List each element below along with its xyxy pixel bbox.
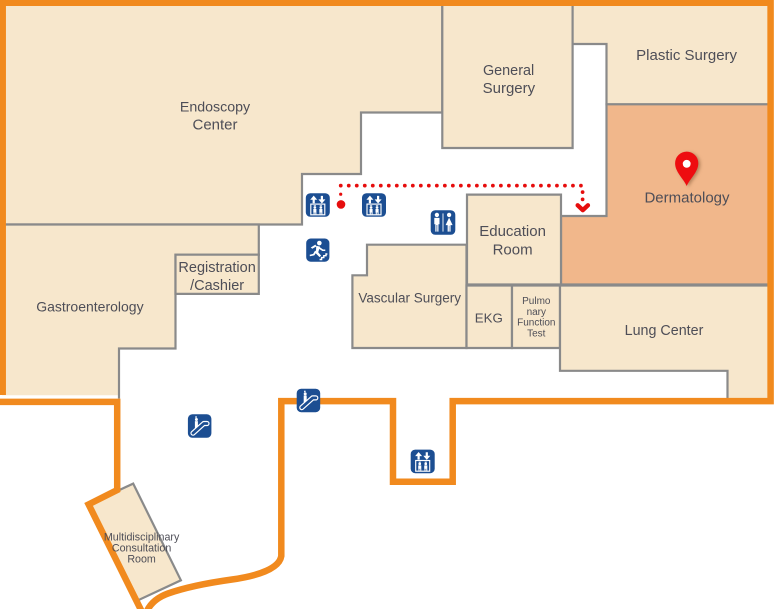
svg-text:Endoscopy: Endoscopy xyxy=(180,100,251,116)
svg-text:Room: Room xyxy=(493,242,533,259)
svg-text:/Cashier: /Cashier xyxy=(190,278,244,294)
svg-text:Surgery: Surgery xyxy=(483,80,536,97)
svg-text:Room: Room xyxy=(127,554,156,566)
svg-text:Test: Test xyxy=(527,328,546,339)
svg-text:Vascular Surgery: Vascular Surgery xyxy=(358,290,461,305)
svg-text:EKG: EKG xyxy=(475,310,503,325)
svg-text:Function: Function xyxy=(517,318,555,329)
svg-text:Lung Center: Lung Center xyxy=(625,323,704,339)
svg-text:Dermatology: Dermatology xyxy=(644,190,730,207)
svg-text:nary: nary xyxy=(527,307,546,318)
svg-text:Education: Education xyxy=(479,223,546,240)
svg-text:Registration: Registration xyxy=(178,260,255,276)
svg-text:Pulmo: Pulmo xyxy=(522,296,551,307)
svg-text:General: General xyxy=(483,63,534,79)
svg-text:Center: Center xyxy=(192,117,237,134)
svg-text:Plastic Surgery: Plastic Surgery xyxy=(636,47,737,64)
svg-text:Gastroenterology: Gastroenterology xyxy=(36,299,143,315)
